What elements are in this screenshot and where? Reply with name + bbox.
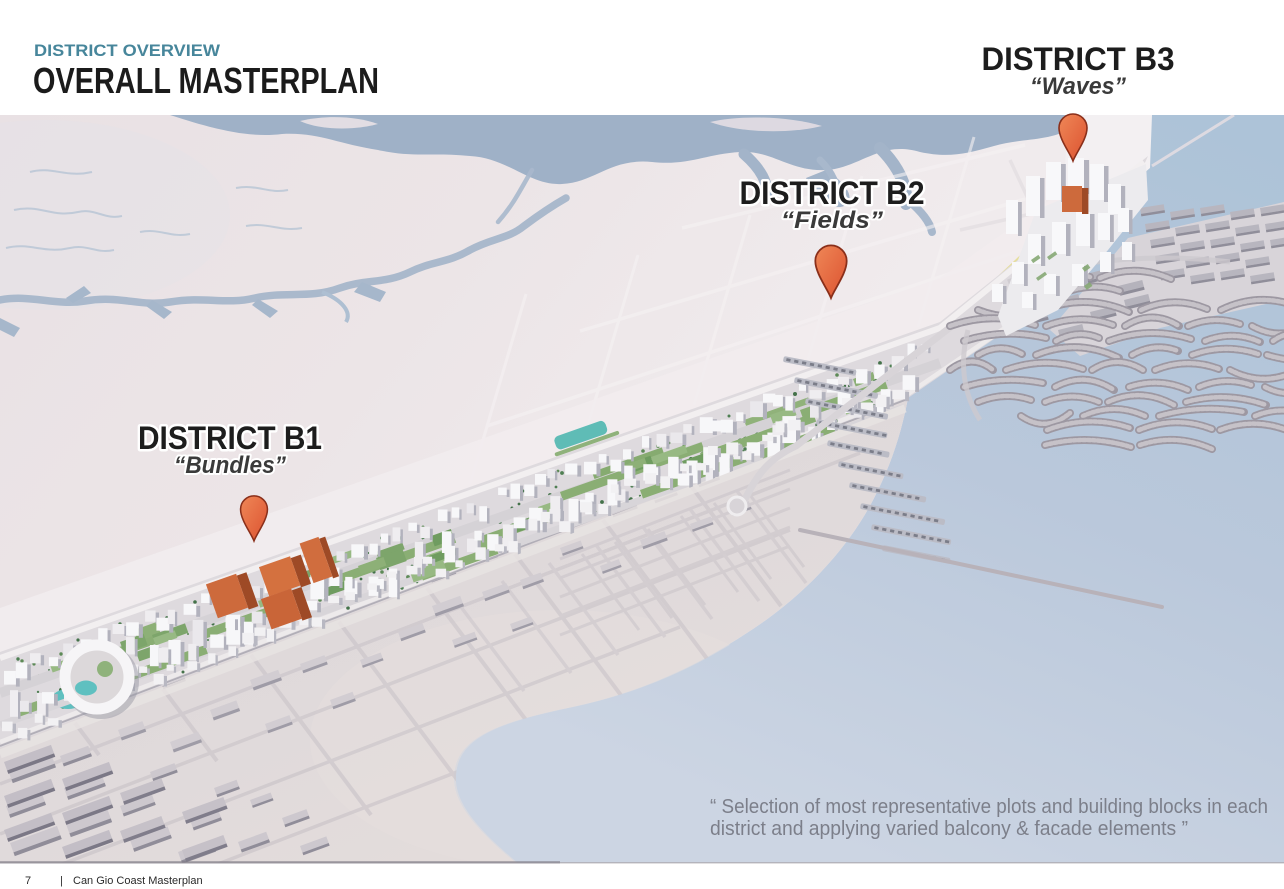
svg-text:Can Gio Coast Masterplan: Can Gio Coast Masterplan (73, 875, 203, 887)
svg-text:“ Selection of most representa: “ Selection of most representative plots… (710, 796, 1268, 818)
svg-text:“Fields”: “Fields” (781, 207, 883, 234)
svg-text:“Waves”: “Waves” (1030, 73, 1126, 100)
svg-text:DISTRICT OVERVIEW: DISTRICT OVERVIEW (34, 41, 221, 60)
svg-text:|: | (60, 875, 63, 887)
svg-text:“Bundles”: “Bundles” (174, 452, 286, 479)
svg-text:DISTRICT B1: DISTRICT B1 (138, 420, 322, 456)
svg-text:district and applying varied b: district and applying varied balcony & f… (710, 818, 1188, 840)
svg-text:DISTRICT B3: DISTRICT B3 (982, 41, 1175, 77)
svg-text:OVERALL MASTERPLAN: OVERALL MASTERPLAN (33, 60, 379, 101)
svg-text:DISTRICT B2: DISTRICT B2 (740, 175, 925, 211)
svg-text:7: 7 (25, 875, 31, 887)
